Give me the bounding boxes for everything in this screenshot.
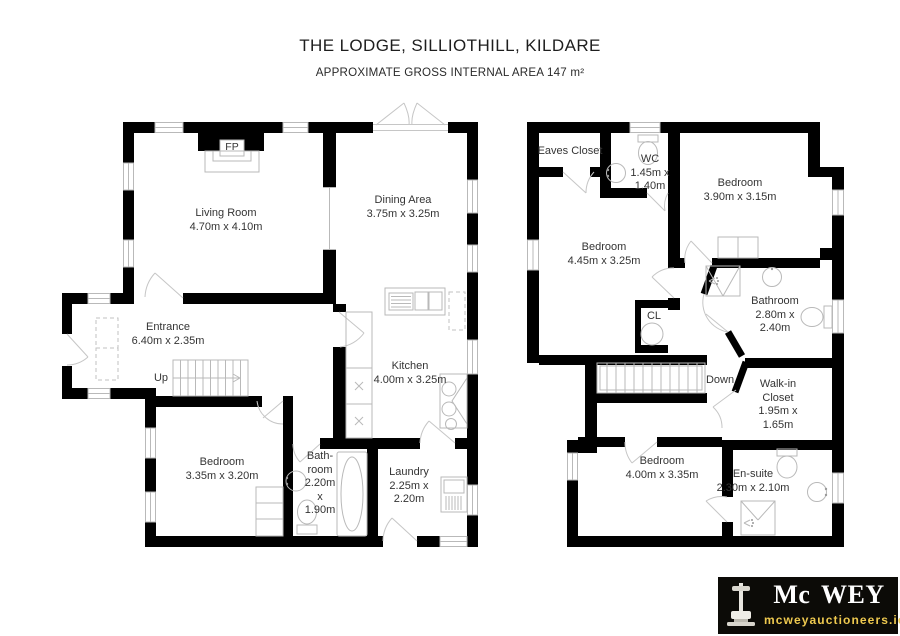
room-label-bedroom-rear: Bedroom 4.00m x 3.35m	[626, 455, 699, 482]
room-label-bathroom-first: Bathroom 2.80m x 2.40m	[751, 295, 799, 336]
stairs-up	[173, 360, 248, 396]
logo-website-text: mcweyauctioneers.ie	[764, 613, 894, 627]
bedroom-wardrobe	[718, 237, 758, 258]
room-label-walk-in-closet: Walk-in Closet 1.95m x 1.65m	[758, 378, 797, 432]
room-label-entrance: Entrance 6.40m x 2.35m	[132, 321, 205, 348]
room-label-bedroom-front: Bedroom 3.90m x 3.15m	[704, 177, 777, 204]
entrance-closet	[96, 318, 118, 380]
room-label-living-room: Living Room 4.70m x 4.10m	[190, 207, 263, 234]
room-label-kitchen: Kitchen 4.00m x 3.25m	[374, 360, 447, 387]
room-label-bathroom-ground: Bath- room 2.20m x 1.90m	[305, 450, 336, 518]
room-label-laundry: Laundry 2.25m x 2.20m	[389, 466, 429, 507]
bathroom-toilet	[801, 306, 832, 328]
ensuite-shower	[741, 501, 775, 535]
mcwey-logo: Mc WEY mcweyauctioneers.ie	[718, 577, 898, 634]
bathroom-sink	[763, 268, 782, 287]
room-label-en-suite: En-suite 2.30m x 2.10m	[717, 468, 790, 495]
gavel-icon	[718, 577, 764, 634]
room-label-closet: CL	[647, 310, 661, 324]
room-label-eaves-closet: Eaves Closet	[538, 145, 603, 159]
bathtub	[337, 452, 367, 536]
room-label-bedroom-middle: Bedroom 4.45m x 3.25m	[568, 241, 641, 268]
closet-cylinder	[641, 323, 663, 345]
logo-brand-text: Mc WEY	[764, 580, 894, 610]
room-label-dining-area: Dining Area 3.75m x 3.25m	[367, 194, 440, 221]
floor-plan-page: THE LODGE, SILLIOTHILL, KILDARE APPROXIM…	[0, 0, 900, 636]
ensuite-sink	[808, 483, 828, 502]
room-label-wc: WC 1.45m x 1.40m	[630, 153, 669, 194]
kitchen-appliances	[346, 312, 372, 438]
kitchen-sink-counter	[385, 288, 465, 330]
wardrobe	[256, 487, 283, 536]
stairs-down-label: Down	[706, 374, 734, 388]
room-label-bedroom-ground: Bedroom 3.35m x 3.20m	[186, 456, 259, 483]
washing-machine	[441, 477, 467, 512]
stairs-up-label: Up	[154, 372, 168, 386]
fireplace-label: FP	[225, 141, 238, 155]
stairs-down	[597, 363, 705, 393]
